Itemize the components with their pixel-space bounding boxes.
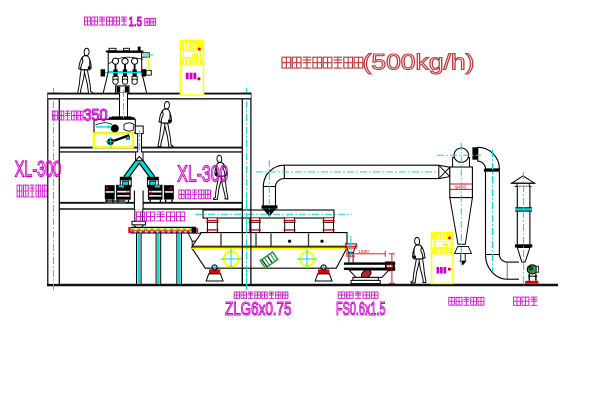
- svg-text:XL-300: XL-300: [15, 156, 62, 181]
- svg-text:ZLG6x0.75: ZLG6x0.75: [225, 298, 292, 319]
- svg-text:φ400: φ400: [455, 184, 466, 190]
- svg-text:(500kg/h): (500kg/h): [363, 49, 475, 74]
- svg-text:1.5: 1.5: [129, 15, 143, 29]
- svg-text:XL-300: XL-300: [177, 161, 228, 187]
- svg-text:1500: 1500: [358, 249, 369, 255]
- svg-text:350: 350: [84, 106, 108, 124]
- svg-text:FS0.6x1.5: FS0.6x1.5: [336, 298, 386, 319]
- svg-text:340: 340: [387, 263, 393, 272]
